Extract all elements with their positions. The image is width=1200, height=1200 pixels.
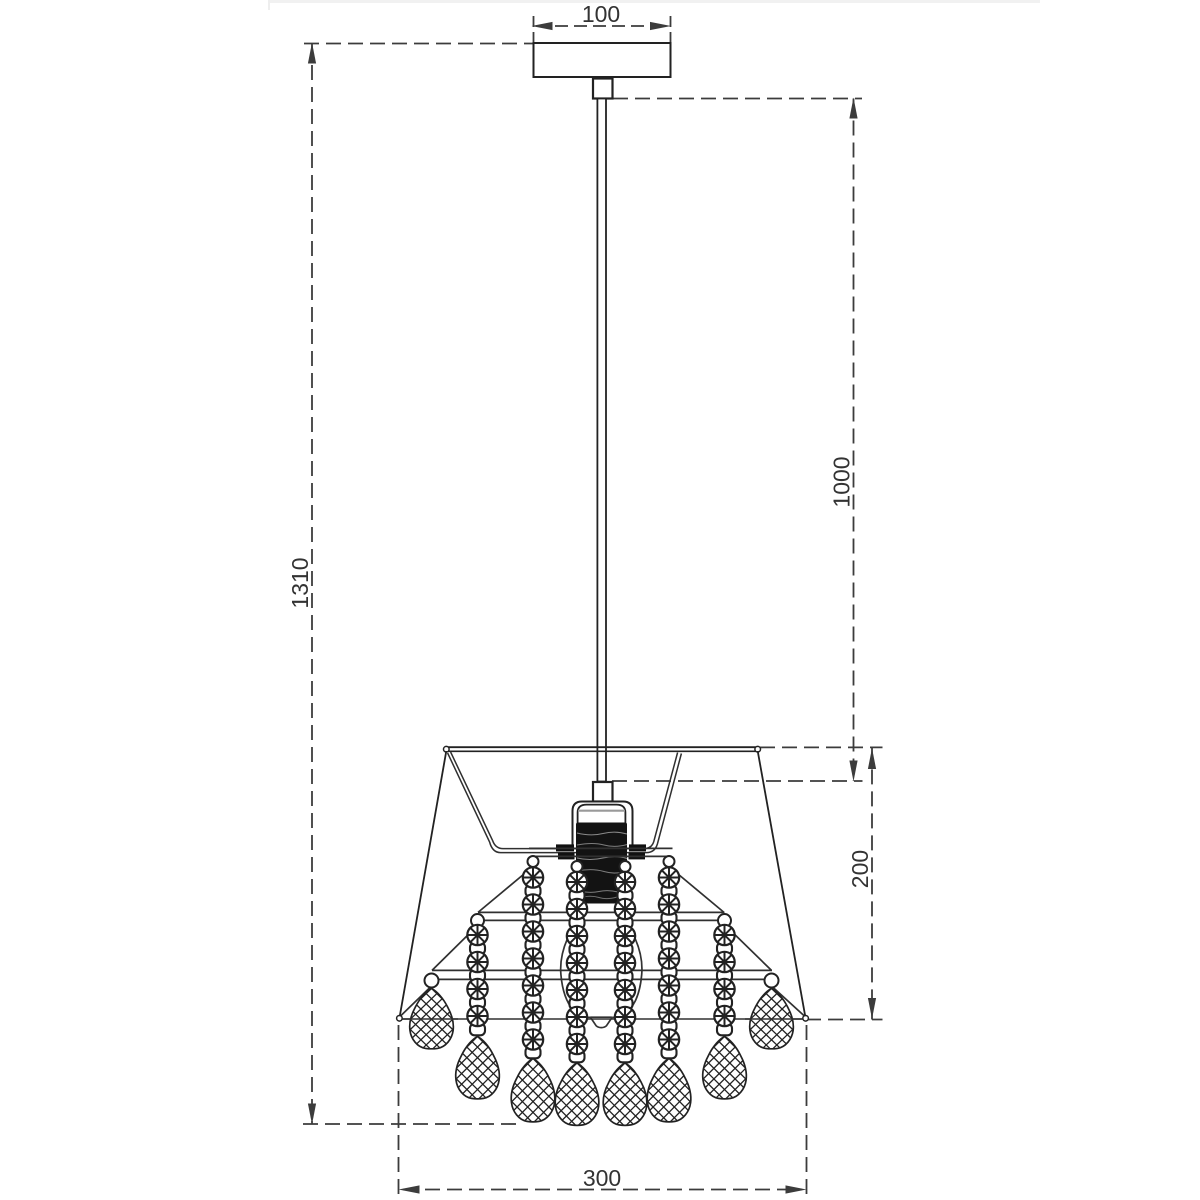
svg-text:200: 200 [847, 850, 873, 888]
svg-text:300: 300 [583, 1165, 621, 1191]
svg-text:1000: 1000 [829, 456, 855, 507]
svg-text:100: 100 [582, 1, 620, 27]
svg-text:1310: 1310 [287, 557, 313, 608]
